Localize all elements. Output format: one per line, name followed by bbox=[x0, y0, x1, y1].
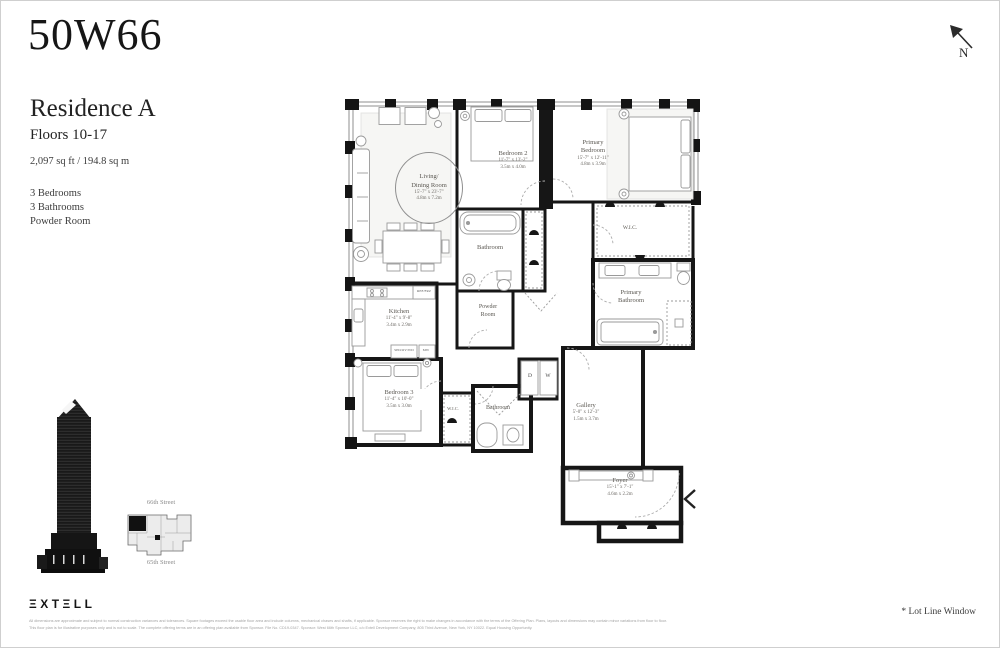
room-label-primary-bedroom: Primary Bedroom 15'-7" x 12'-11" 4.8m x … bbox=[561, 139, 625, 169]
residence-features: 3 Bedrooms 3 Bathrooms Powder Room bbox=[30, 187, 90, 229]
keyplan-street-top: 66th Street bbox=[116, 499, 206, 506]
residence-floors: Floors 10-17 bbox=[30, 127, 107, 144]
sink-icon bbox=[639, 266, 659, 276]
label-spd-ov: SPD/OV/WD bbox=[389, 348, 419, 352]
bench-icon bbox=[375, 434, 405, 441]
sofa-icon bbox=[353, 149, 370, 243]
room-outline-wic3 bbox=[441, 393, 473, 445]
feature-powder-room: Powder Room bbox=[30, 215, 90, 229]
room-label-wic: W.I.C. bbox=[608, 225, 652, 232]
disclaimer-line1: All dimensions are approximate and subje… bbox=[29, 619, 979, 623]
room-label-bathroom2: Bathroom bbox=[460, 244, 520, 252]
hanger-icon bbox=[529, 260, 539, 265]
building-logo: 50W66 bbox=[28, 9, 163, 60]
cooktop-icon bbox=[367, 288, 387, 297]
room-label-kitchen: Kitchen 11'-4" x 9'-8" 3.4m x 2.9m bbox=[365, 308, 433, 329]
label-mw: MW bbox=[416, 348, 436, 352]
north-label: N bbox=[959, 45, 969, 60]
residence-title: Residence A bbox=[30, 95, 156, 123]
north-arrow-icon: N bbox=[939, 17, 987, 61]
highlighted-residence bbox=[129, 516, 146, 531]
feature-bathrooms: 3 Bathrooms bbox=[30, 201, 90, 215]
disclaimer-line2: This floor plan is for illustrative purp… bbox=[29, 626, 979, 630]
armchair-icon bbox=[379, 108, 400, 125]
extell-logo: ΞXTΞLL bbox=[29, 597, 95, 611]
bathtub-icon bbox=[477, 423, 497, 447]
label-ref-frz: REF/FRZ bbox=[409, 289, 439, 293]
building-illustration bbox=[35, 393, 111, 585]
side-table-icon bbox=[354, 247, 369, 262]
hanger-icon bbox=[529, 230, 539, 235]
room-label-primary-bathroom: Primary Bathroom bbox=[601, 289, 661, 306]
room-outline-vestibule bbox=[599, 523, 681, 541]
room-label-wic3: W.I.C. bbox=[439, 406, 467, 412]
residence-area: 2,097 sq ft / 194.8 sq m bbox=[30, 156, 129, 167]
room-label-bedroom3: Bedroom 3 11'-4" x 10'-0" 3.5m x 3.0m bbox=[365, 389, 433, 410]
room-label-foyer: Foyer 15'-1" x 7'-1" 4.6m x 2.2m bbox=[584, 477, 656, 498]
shower-icon bbox=[667, 301, 691, 345]
room-label-bathroom3: Bathroom bbox=[468, 405, 528, 413]
feature-bedrooms: 3 Bedrooms bbox=[30, 187, 90, 201]
label-dryer: D bbox=[522, 373, 538, 379]
toilet-icon bbox=[497, 271, 511, 280]
sink-icon bbox=[605, 266, 625, 276]
dining-table-icon bbox=[383, 231, 441, 263]
sink-icon bbox=[463, 274, 475, 286]
room-label-powder-room: Powder Room bbox=[463, 304, 513, 320]
toilet-icon bbox=[677, 263, 690, 271]
label-washer: W bbox=[540, 373, 556, 379]
armchair-icon bbox=[405, 108, 426, 125]
room-label-bedroom2: Bedroom 2 11'-7" x 13'-2" 3.5m x 4.0m bbox=[471, 150, 555, 171]
hanger-icon bbox=[447, 418, 457, 423]
room-label-gallery: Gallery 5'-0" x 12'-3" 1.5m x 3.7m bbox=[557, 402, 615, 423]
entry-arrow-icon bbox=[685, 490, 695, 508]
lot-line-note: * Lot Line Window bbox=[841, 607, 976, 617]
floorplan-brochure-page: 50W66 N Residence A Floors 10-17 2,097 s… bbox=[0, 0, 1000, 648]
room-label-living-dining: Living/ Dining Room 15'-7" x 23'-7" 4.8m… bbox=[395, 152, 463, 224]
keyplan-street-bottom: 65th Street bbox=[116, 559, 206, 566]
key-plan bbox=[125, 511, 197, 559]
